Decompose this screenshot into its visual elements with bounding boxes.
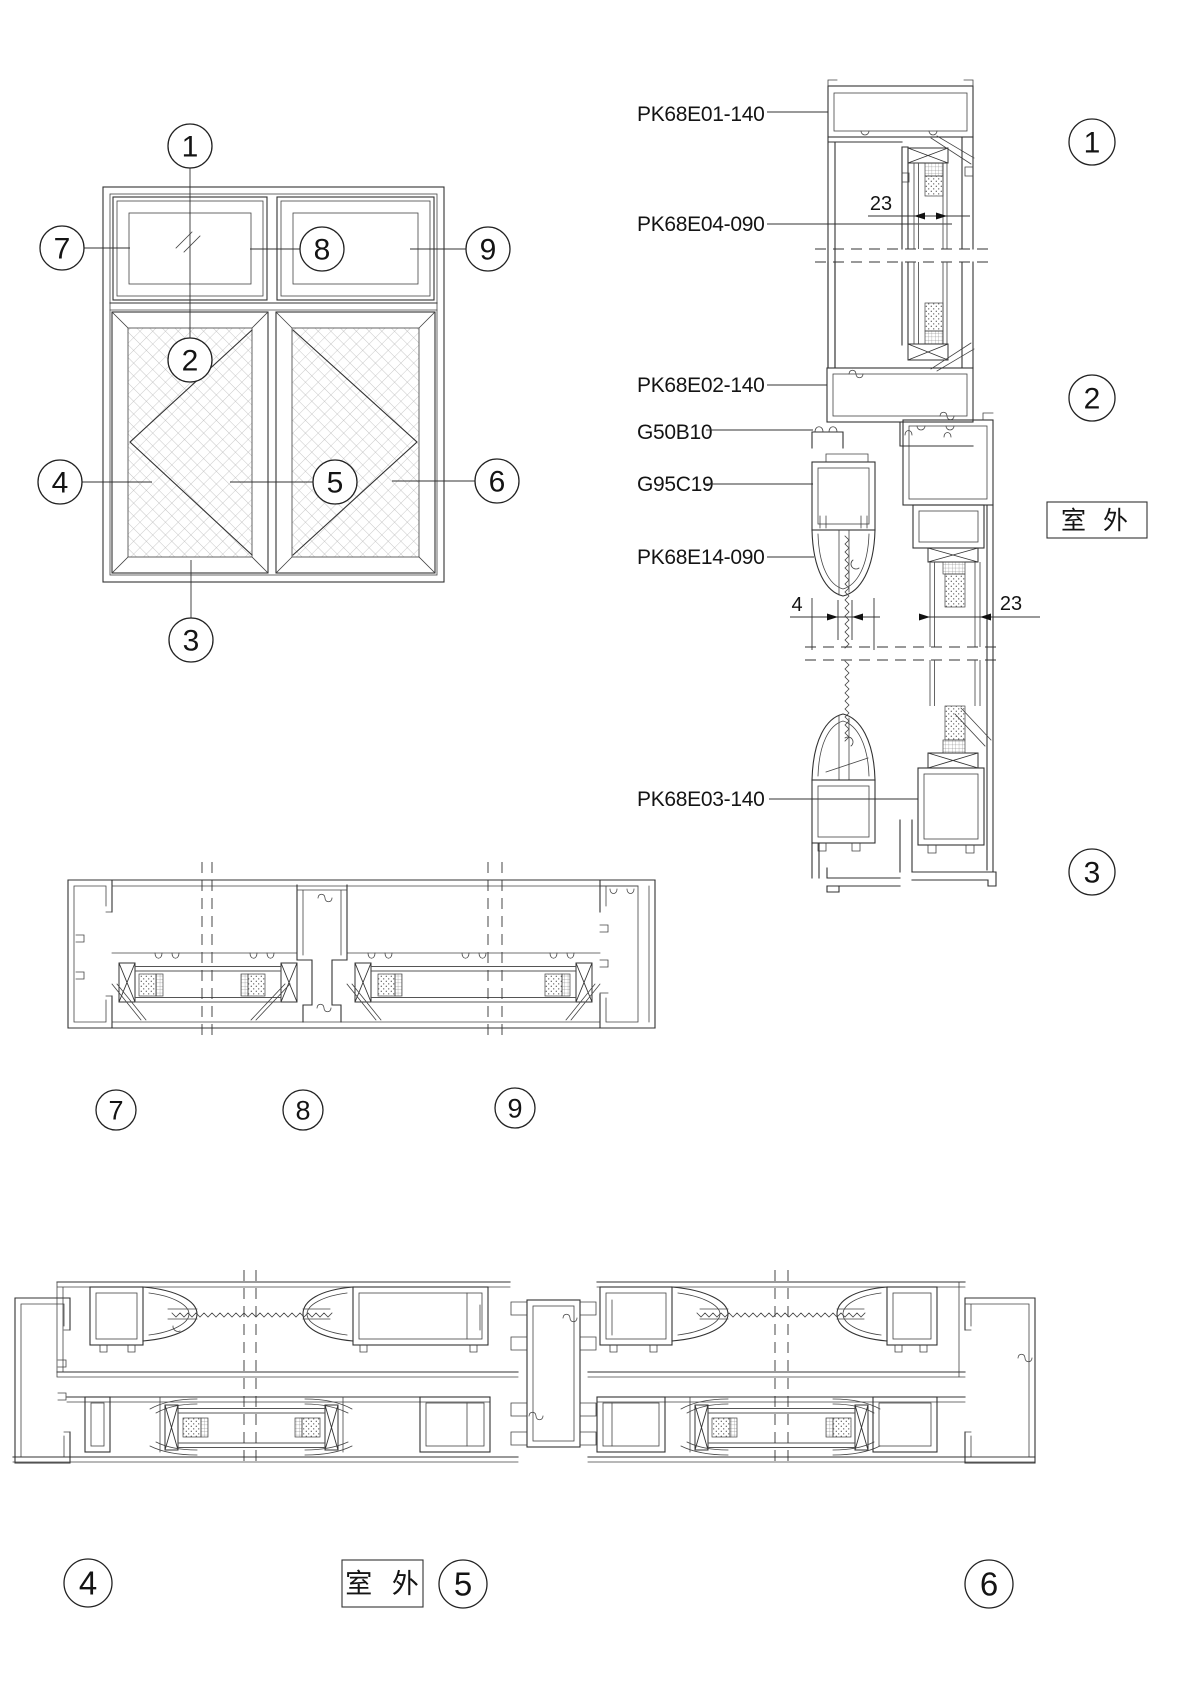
sill-frame-pk68e03 [812, 820, 996, 892]
part-label-pk68e02: PK68E02-140 [637, 374, 764, 397]
cad-drawing: 1 2 3 4 5 6 7 8 9 PK68E01-140 PK68E04-09… [0, 0, 1200, 1692]
sash-bottom-left [812, 780, 875, 851]
callout-6: 6 [475, 459, 519, 503]
callout-4: 4 [38, 460, 82, 504]
frame-chords [112, 880, 655, 1028]
section-callout-5: 5 [439, 1560, 487, 1608]
section-callout-8: 8 [283, 1090, 323, 1130]
part-label-g50b10: G50B10 [637, 421, 712, 444]
spacer-block [943, 562, 965, 574]
center-mullion [511, 1300, 596, 1447]
setting-block [945, 574, 965, 607]
callout-number: 5 [454, 1566, 472, 1603]
callout-9: 9 [466, 227, 510, 271]
part-label-pk68e03: PK68E03-140 [637, 788, 764, 811]
callout-number: 9 [480, 234, 497, 267]
callout-number: 8 [314, 234, 331, 267]
callout-number: 6 [980, 1566, 998, 1603]
weatherstrip-zigzag-upper [845, 536, 849, 648]
upper-band-chords [57, 1282, 965, 1372]
horizontal-section-456: 4 室 外 5 6 [13, 1270, 1035, 1608]
clip-hooks [155, 953, 574, 958]
callout-3: 3 [169, 618, 213, 662]
spacer-block [943, 740, 965, 753]
s-clip [529, 1314, 577, 1420]
elevation-view: 1 2 3 4 5 6 7 8 9 [38, 124, 519, 662]
dim-text: 4 [791, 594, 802, 616]
s-clip [317, 894, 332, 1012]
glass-symbol [176, 232, 200, 252]
lower-band-chords [13, 1397, 1035, 1457]
screen-frame-g95c19 [812, 454, 875, 530]
callout-number: 1 [1084, 127, 1101, 160]
callout-number: 7 [108, 1096, 123, 1126]
setting-block [945, 706, 965, 740]
section-callout-4: 4 [64, 1559, 112, 1607]
callout-number: 3 [183, 625, 200, 658]
outdoor-text: 室 外 [1061, 507, 1133, 535]
part-labels: PK68E01-140 PK68E04-090 PK68E02-140 G50B… [637, 103, 952, 811]
bead-curves-top [681, 1399, 880, 1413]
bead-curves-bottom [681, 1442, 880, 1455]
callout-2: 2 [168, 338, 212, 382]
callout-number: 4 [79, 1565, 97, 1602]
drawing-page: 1 2 3 4 5 6 7 8 9 PK68E01-140 PK68E04-09… [0, 0, 1200, 1692]
break-line-2 [805, 647, 1000, 660]
pane5-stiles [600, 1287, 937, 1352]
callout-1: 1 [168, 124, 212, 168]
seal-profile-pk68e14-lower [812, 714, 875, 780]
bottom-right-panel [276, 312, 435, 573]
callout-number: 5 [327, 467, 344, 500]
part-label-pk68e01: PK68E01-140 [637, 103, 764, 126]
right-jamb [965, 1298, 1035, 1463]
glazing-bead [931, 343, 974, 371]
right-jamb [600, 880, 655, 1028]
dimension-glass-bottom: 23 [919, 593, 1040, 621]
callout-number: 3 [1084, 857, 1101, 890]
spacer-block [925, 331, 943, 344]
casement-frame-head [903, 413, 993, 872]
spacer-block [925, 163, 943, 176]
section-callout-3: 3 [1069, 849, 1115, 895]
section-callout-2: 2 [1069, 375, 1115, 421]
callout-5: 5 [313, 460, 357, 504]
callout-number: 9 [507, 1094, 522, 1124]
setting-block [925, 303, 943, 331]
vertical-section: PK68E01-140 PK68E04-090 PK68E02-140 G50B… [637, 80, 1147, 895]
dimension-glass-top: 23 [868, 193, 970, 220]
section-callout-7: 7 [96, 1090, 136, 1130]
pane4-glazing [85, 1397, 490, 1455]
callout-8: 8 [300, 227, 344, 271]
glazing-top [908, 136, 974, 249]
left-jamb [68, 880, 112, 1028]
callout-number: 2 [1084, 383, 1101, 416]
part-label-g95c19: G95C19 [637, 473, 713, 496]
dim-text: 23 [1000, 593, 1022, 615]
weatherstrip-zigzag-lower [845, 661, 849, 741]
dimension-seal-gap: 4 [790, 594, 880, 650]
pane5-glazing [597, 1397, 937, 1455]
casement-sash-bottom [918, 660, 991, 853]
callout-7: 7 [40, 226, 84, 270]
s-clip [849, 370, 954, 420]
section-callout-9: 9 [495, 1088, 535, 1128]
seal-profile-pk68e14-upper [812, 530, 875, 596]
glazing-bead [931, 136, 974, 164]
setting-block [925, 176, 943, 196]
outdoor-label-right: 室 外 [1047, 502, 1147, 538]
section-callout-6: 6 [965, 1560, 1013, 1608]
horizontal-section-789: 7 8 9 [68, 862, 655, 1130]
bead-curves-top [150, 1399, 352, 1413]
pane4-stiles [90, 1287, 488, 1352]
glazing-pane-2 [347, 963, 600, 1020]
casement-sash-top [913, 505, 984, 647]
callout-number: 8 [295, 1096, 310, 1126]
bead-curves-bottom [150, 1442, 352, 1455]
break-lines [244, 1270, 788, 1468]
section-callout-1: 1 [1069, 119, 1115, 165]
screen-mesh [292, 328, 419, 557]
break-lines [202, 862, 502, 1042]
outdoor-label-bottom: 室 外 [342, 1560, 425, 1607]
break-line-1 [815, 249, 990, 262]
transom-pk68e02 [827, 368, 973, 422]
left-jamb [15, 1298, 70, 1463]
callout-number: 4 [52, 467, 69, 500]
outdoor-text: 室 外 [345, 1569, 425, 1599]
dim-text: 23 [870, 193, 892, 215]
glazing-bottom-fixed [828, 262, 974, 371]
glazing-pane-1 [112, 963, 297, 1020]
weatherstrip-zigzag [697, 1313, 865, 1317]
callout-number: 1 [182, 131, 199, 164]
weatherstrip-zigzag [172, 1313, 332, 1317]
center-mullion [297, 885, 347, 1022]
callout-number: 7 [54, 233, 71, 266]
callout-number: 2 [182, 345, 199, 378]
part-label-pk68e04: PK68E04-090 [637, 213, 764, 236]
callout-number: 6 [489, 466, 506, 499]
gasket-x [908, 148, 948, 163]
part-label-pk68e14: PK68E14-090 [637, 546, 764, 569]
